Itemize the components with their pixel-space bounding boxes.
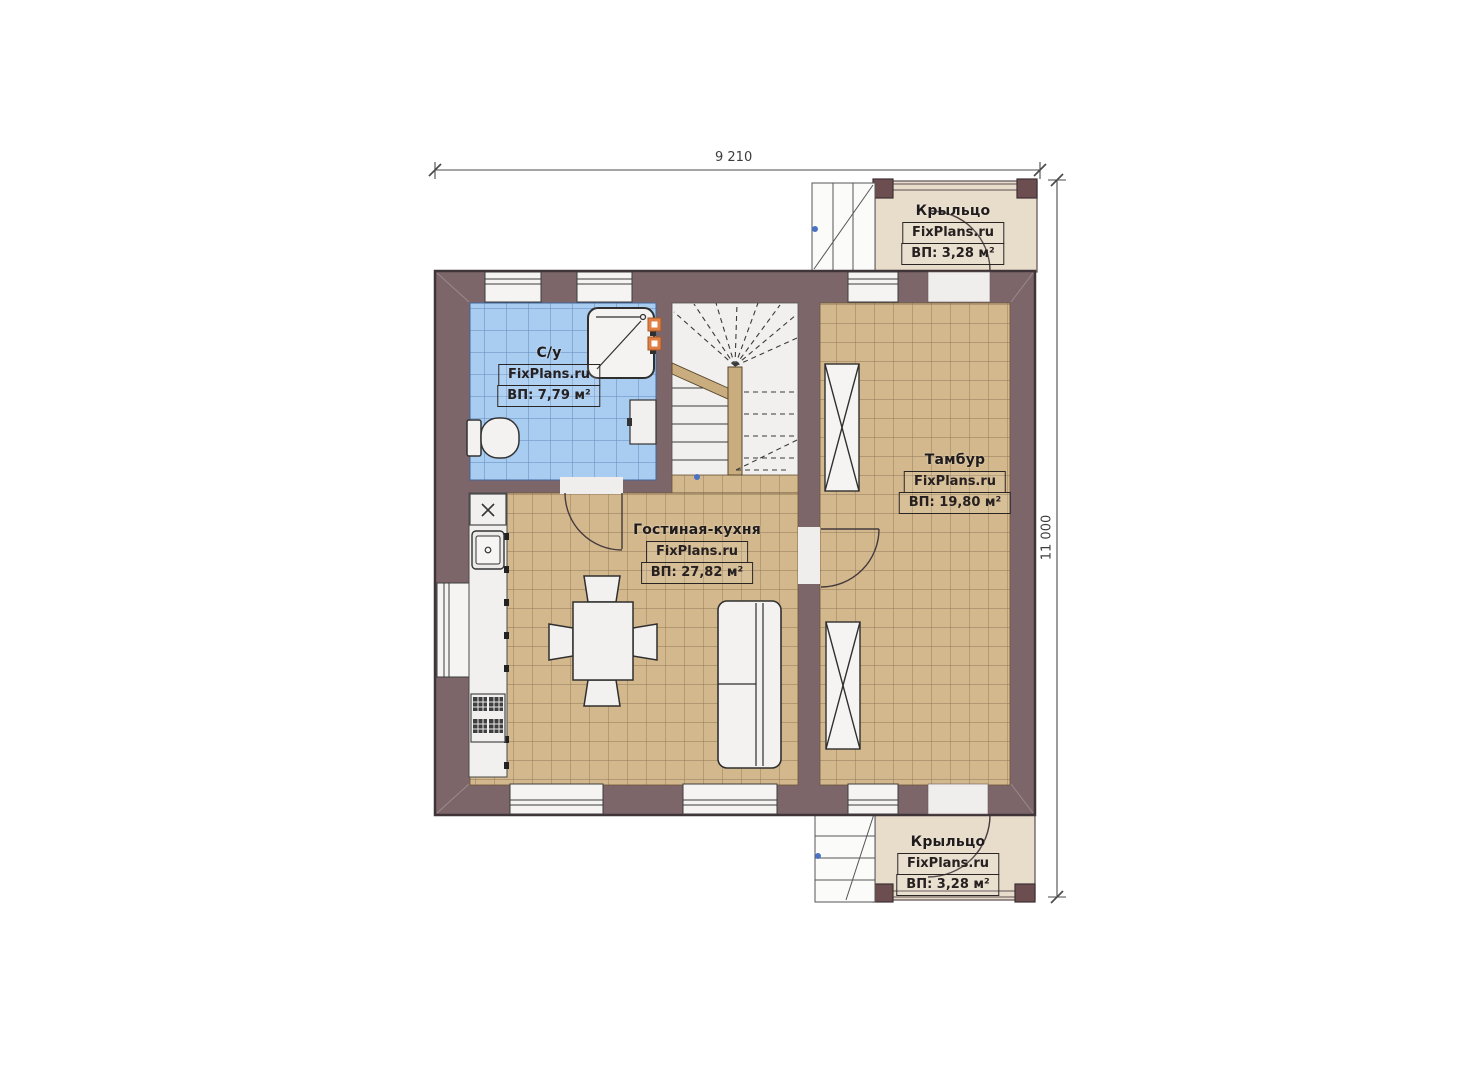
- chair: [584, 680, 620, 706]
- watermark: FixPlans.ru: [902, 222, 1004, 244]
- reference-marker: [812, 226, 818, 232]
- room-area: ВП: 27,82 м²: [641, 562, 753, 584]
- porch-post: [1017, 179, 1037, 198]
- room-label-vestibule: Тамбур FixPlans.ru ВП: 19,80 м²: [899, 452, 1011, 514]
- porch-post: [1015, 884, 1035, 902]
- room-label-bathroom: С/у FixPlans.ru ВП: 7,79 м²: [497, 345, 600, 407]
- chair: [549, 624, 573, 660]
- porch-bottom-steps: [815, 812, 875, 902]
- watermark: FixPlans.ru: [646, 541, 748, 563]
- room-name: Гостиная-кухня: [633, 522, 761, 538]
- dimension-width: 9 210: [715, 150, 752, 165]
- bathroom-door-leaf: [627, 400, 656, 444]
- chair: [584, 576, 620, 602]
- porch-post: [873, 884, 893, 902]
- sofa: [718, 601, 781, 768]
- toilet: [467, 418, 519, 458]
- porch-post: [873, 179, 893, 198]
- reference-marker: [694, 474, 700, 480]
- watermark: FixPlans.ru: [904, 471, 1006, 493]
- dining-table: [573, 602, 633, 680]
- room-name: С/у: [536, 345, 561, 361]
- dimension-height: 11 000: [1040, 513, 1055, 563]
- kitchen-stove: [471, 694, 505, 742]
- reference-marker: [815, 853, 821, 859]
- room-area: ВП: 19,80 м²: [899, 492, 1011, 514]
- stair-newel: [728, 367, 742, 475]
- room-name: Крыльцо: [916, 203, 991, 219]
- room-area: ВП: 3,28 м²: [896, 874, 999, 896]
- room-name: Крыльцо: [911, 834, 986, 850]
- room-name: Тамбур: [925, 452, 986, 468]
- kitchen-counter: [469, 493, 509, 777]
- stair-landing: [672, 475, 798, 493]
- watermark: FixPlans.ru: [498, 364, 600, 386]
- floor-plan-canvas: 9 210 11 000 Крыльцо FixPlans.ru ВП: 3,2…: [0, 0, 1473, 1080]
- room-label-porch-top: Крыльцо FixPlans.ru ВП: 3,28 м²: [901, 203, 1004, 265]
- porch-top-steps: [812, 183, 875, 271]
- room-label-porch-bottom: Крыльцо FixPlans.ru ВП: 3,28 м²: [896, 834, 999, 896]
- room-area: ВП: 3,28 м²: [901, 243, 1004, 265]
- watermark: FixPlans.ru: [897, 853, 999, 875]
- room-area: ВП: 7,79 м²: [497, 385, 600, 407]
- kitchen-sink: [472, 531, 504, 569]
- chair: [633, 624, 657, 660]
- room-label-living-kitchen: Гостиная-кухня FixPlans.ru ВП: 27,82 м²: [633, 522, 761, 584]
